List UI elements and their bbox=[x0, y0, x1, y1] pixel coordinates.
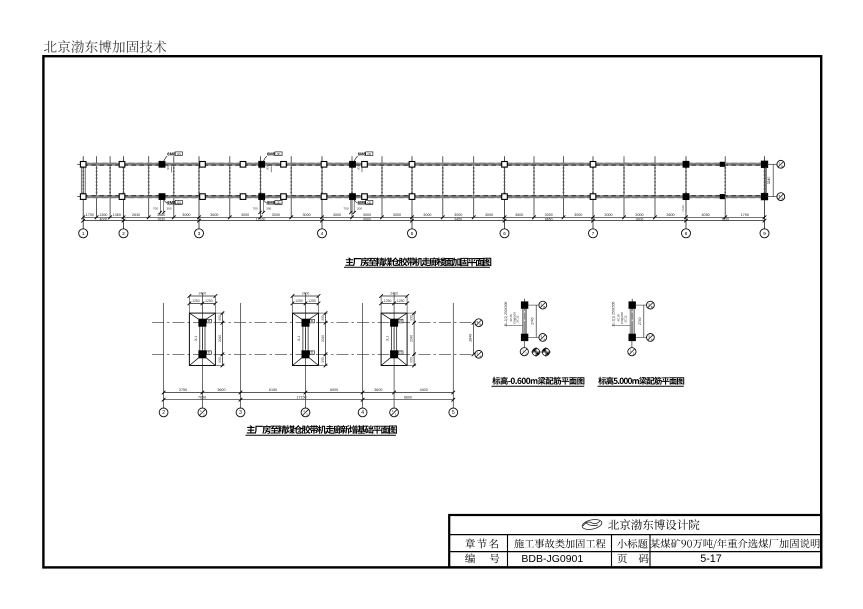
svg-text:(2): (2) bbox=[367, 201, 371, 205]
svg-text:2: 2 bbox=[122, 231, 125, 236]
svg-text:3000: 3000 bbox=[635, 213, 643, 217]
svg-text:3600: 3600 bbox=[515, 213, 523, 217]
svg-text:5-17: 5-17 bbox=[700, 553, 722, 565]
svg-text:9300: 9300 bbox=[636, 217, 644, 221]
svg-text:950: 950 bbox=[410, 357, 414, 363]
svg-text:9: 9 bbox=[763, 231, 766, 236]
svg-text:700: 700 bbox=[153, 206, 158, 210]
svg-text:2C12: 2C12 bbox=[623, 315, 627, 323]
svg-text:3600: 3600 bbox=[217, 388, 225, 392]
svg-text:300: 300 bbox=[266, 165, 270, 170]
svg-text:B: B bbox=[651, 305, 653, 309]
svg-text:8850: 8850 bbox=[545, 217, 553, 221]
svg-text:8: 8 bbox=[685, 231, 688, 236]
svg-text:3000: 3000 bbox=[302, 213, 310, 217]
svg-text:9060: 9060 bbox=[363, 217, 371, 221]
svg-text:4400: 4400 bbox=[420, 388, 428, 392]
svg-text:6M8: 6M8 bbox=[358, 200, 367, 205]
svg-text:1250: 1250 bbox=[192, 299, 200, 303]
svg-text:2400: 2400 bbox=[302, 292, 310, 296]
svg-text:BDB-JG0901: BDB-JG0901 bbox=[521, 553, 583, 565]
svg-text:7630: 7630 bbox=[157, 217, 165, 221]
svg-text:300: 300 bbox=[266, 206, 271, 210]
svg-text:2400: 2400 bbox=[390, 292, 398, 296]
svg-text:6M8: 6M8 bbox=[267, 152, 276, 157]
svg-text:3000: 3000 bbox=[333, 213, 341, 217]
svg-text:2C12: 2C12 bbox=[516, 315, 520, 323]
svg-text:2400: 2400 bbox=[199, 292, 207, 296]
svg-text:6M8: 6M8 bbox=[167, 152, 176, 157]
svg-text:B: B bbox=[479, 323, 481, 327]
svg-text:950: 950 bbox=[410, 315, 414, 321]
svg-text:950: 950 bbox=[321, 357, 325, 363]
svg-text:1700: 1700 bbox=[741, 213, 749, 217]
svg-text:300: 300 bbox=[166, 165, 170, 170]
svg-text:12160: 12160 bbox=[256, 217, 266, 221]
svg-text:3600: 3600 bbox=[374, 388, 382, 392]
svg-text:2840: 2840 bbox=[468, 334, 472, 342]
svg-text:300: 300 bbox=[166, 206, 171, 210]
svg-text:B: B bbox=[543, 305, 545, 309]
svg-text:6600: 6600 bbox=[404, 396, 412, 400]
svg-text:7: 7 bbox=[592, 231, 595, 236]
svg-text:4: 4 bbox=[361, 410, 364, 416]
svg-text:950: 950 bbox=[218, 315, 222, 321]
svg-text:3000: 3000 bbox=[272, 213, 280, 217]
svg-text:3000: 3000 bbox=[545, 213, 553, 217]
svg-text:1360: 1360 bbox=[99, 213, 107, 217]
svg-text:4000: 4000 bbox=[99, 217, 107, 221]
svg-text:1250: 1250 bbox=[295, 299, 303, 303]
svg-text:300: 300 bbox=[356, 165, 360, 170]
svg-text:700: 700 bbox=[343, 206, 348, 210]
svg-text:A: A bbox=[543, 337, 545, 341]
svg-text:3000: 3000 bbox=[574, 213, 582, 217]
svg-text:(2): (2) bbox=[177, 152, 181, 156]
svg-text:1250: 1250 bbox=[308, 299, 316, 303]
svg-text:2040: 2040 bbox=[321, 335, 325, 342]
svg-text:3600: 3600 bbox=[210, 213, 218, 217]
svg-text:6M8: 6M8 bbox=[167, 200, 176, 205]
svg-text:3000: 3000 bbox=[485, 213, 493, 217]
svg-text:2: 2 bbox=[162, 410, 165, 416]
svg-text:(2): (2) bbox=[367, 152, 371, 156]
svg-text:2040: 2040 bbox=[410, 335, 414, 342]
svg-text:4: 4 bbox=[321, 231, 324, 236]
svg-text:9450: 9450 bbox=[454, 217, 462, 221]
svg-text:3000: 3000 bbox=[363, 213, 371, 217]
svg-text:7850: 7850 bbox=[721, 217, 729, 221]
svg-text:17150: 17150 bbox=[297, 396, 307, 400]
svg-text:3: 3 bbox=[198, 231, 201, 236]
svg-text:2L-1(1) 250X500: 2L-1(1) 250X500 bbox=[611, 301, 615, 326]
svg-text:3240: 3240 bbox=[767, 177, 771, 185]
svg-text:2L-1(1) 250X500: 2L-1(1) 250X500 bbox=[504, 301, 508, 326]
svg-text:3000: 3000 bbox=[454, 213, 462, 217]
svg-text:3000: 3000 bbox=[241, 213, 249, 217]
svg-text:JL1: JL1 bbox=[386, 336, 390, 341]
svg-text:3000: 3000 bbox=[423, 213, 431, 217]
svg-text:2040: 2040 bbox=[218, 335, 222, 342]
svg-text:6000: 6000 bbox=[330, 388, 338, 392]
svg-text:5: 5 bbox=[452, 410, 455, 416]
svg-text:1250: 1250 bbox=[205, 299, 213, 303]
svg-text:2630: 2630 bbox=[132, 213, 140, 217]
svg-text:700: 700 bbox=[253, 206, 258, 210]
svg-text:A: A bbox=[781, 197, 783, 201]
svg-text:1250: 1250 bbox=[397, 299, 405, 303]
svg-text:(2): (2) bbox=[277, 201, 281, 205]
svg-text:3000: 3000 bbox=[604, 213, 612, 217]
svg-text:3660: 3660 bbox=[157, 213, 165, 217]
svg-text:3: 3 bbox=[239, 410, 242, 416]
svg-text:1700: 1700 bbox=[86, 213, 94, 217]
svg-text:300: 300 bbox=[357, 206, 362, 210]
svg-text:6: 6 bbox=[503, 231, 506, 236]
svg-text:3600: 3600 bbox=[666, 213, 674, 217]
svg-text:950: 950 bbox=[321, 315, 325, 321]
svg-text:A: A bbox=[651, 337, 653, 341]
svg-text:1: 1 bbox=[82, 231, 85, 236]
svg-text:3000: 3000 bbox=[182, 213, 190, 217]
svg-text:JL1: JL1 bbox=[297, 336, 301, 341]
svg-text:7420: 7420 bbox=[681, 205, 685, 212]
svg-text:JL1: JL1 bbox=[194, 336, 198, 341]
svg-text:6M8: 6M8 bbox=[267, 200, 276, 205]
svg-text:5: 5 bbox=[411, 231, 414, 236]
svg-text:3750: 3750 bbox=[179, 388, 187, 392]
svg-text:7650: 7650 bbox=[198, 396, 206, 400]
svg-text:1360: 1360 bbox=[113, 213, 121, 217]
svg-text:(2): (2) bbox=[277, 152, 281, 156]
svg-text:6M8: 6M8 bbox=[358, 152, 367, 157]
svg-text:950: 950 bbox=[218, 357, 222, 363]
svg-text:A: A bbox=[479, 354, 481, 358]
svg-text:2740: 2740 bbox=[531, 317, 535, 325]
svg-text:(2): (2) bbox=[177, 201, 181, 205]
svg-text:1250: 1250 bbox=[384, 299, 392, 303]
svg-text:2740: 2740 bbox=[638, 317, 642, 325]
svg-text:3000: 3000 bbox=[393, 213, 401, 217]
svg-text:B: B bbox=[781, 164, 783, 168]
svg-text:6150: 6150 bbox=[269, 388, 277, 392]
svg-text:4050: 4050 bbox=[701, 213, 709, 217]
